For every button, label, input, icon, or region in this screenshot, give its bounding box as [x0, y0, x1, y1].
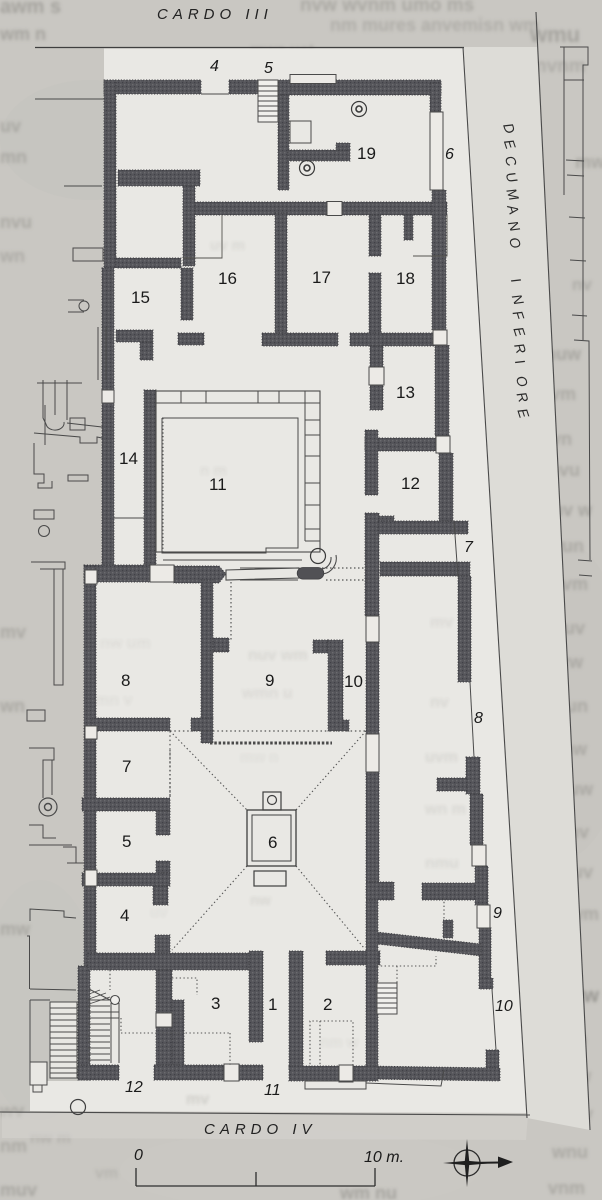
svg-text:nm: nm [0, 1136, 27, 1156]
svg-text:nm mures anvemisn wm: nm mures anvemisn wm [330, 15, 539, 35]
svg-text:7: 7 [122, 757, 131, 776]
svg-text:wn: wn [0, 696, 25, 716]
svg-text:wm n: wm n [0, 24, 46, 44]
svg-text:vnm: vnm [548, 1178, 585, 1198]
svg-text:4: 4 [210, 58, 219, 75]
svg-text:mv: mv [0, 622, 26, 642]
svg-text:nmu: nmu [425, 855, 459, 872]
svg-text:10 m.: 10 m. [364, 1149, 404, 1166]
svg-text:CARDO III: CARDO III [157, 6, 273, 23]
svg-text:mw: mw [0, 919, 31, 939]
svg-text:nw: nw [250, 892, 271, 909]
svg-text:m: m [180, 557, 192, 573]
svg-text:nw um: nw um [100, 635, 151, 652]
svg-text:mw: mw [575, 152, 602, 172]
svg-text:nv: nv [430, 694, 449, 711]
svg-text:1: 1 [268, 995, 277, 1014]
svg-text:muv: muv [0, 1180, 37, 1200]
svg-text:nuv wm: nuv wm [248, 647, 308, 664]
svg-text:wmn u: wmn u [241, 685, 293, 702]
svg-text:mw n: mw n [240, 749, 278, 766]
svg-text:0: 0 [134, 1147, 143, 1164]
svg-text:16: 16 [218, 269, 237, 288]
svg-text:6: 6 [445, 146, 454, 163]
svg-text:2: 2 [323, 995, 332, 1014]
svg-text:12: 12 [401, 474, 420, 493]
svg-text:nv: nv [572, 275, 592, 294]
svg-text:5: 5 [264, 60, 273, 77]
svg-text:nm w: nm w [320, 1034, 359, 1051]
svg-text:7: 7 [464, 539, 474, 556]
svg-text:awm s: awm s [0, 0, 61, 18]
svg-text:18: 18 [396, 269, 415, 288]
svg-text:10: 10 [344, 672, 363, 691]
svg-text:8: 8 [121, 671, 130, 690]
svg-text:nvnm: nvnm [535, 56, 586, 77]
svg-text:uv: uv [0, 116, 21, 136]
svg-text:8: 8 [474, 710, 483, 727]
svg-text:nvw wvnm umo ms: nvw wvnm umo ms [300, 0, 474, 16]
svg-text:uv: uv [150, 904, 168, 921]
svg-text:4: 4 [120, 906, 129, 925]
svg-text:wnu: wnu [551, 1142, 588, 1162]
svg-text:uvm: uvm [425, 749, 458, 766]
svg-text:mv: mv [430, 614, 453, 631]
svg-text:mv: mv [186, 1091, 209, 1108]
svg-text:14: 14 [119, 449, 138, 468]
svg-text:15: 15 [131, 288, 150, 307]
svg-text:nvu: nvu [0, 212, 32, 232]
svg-text:10: 10 [495, 998, 513, 1015]
svg-text:mn: mn [0, 147, 27, 167]
svg-text:CARDO IV: CARDO IV [204, 1121, 317, 1138]
svg-text:wn m: wn m [424, 801, 466, 818]
svg-text:17: 17 [312, 268, 331, 287]
svg-text:n m: n m [200, 462, 227, 479]
svg-text:13: 13 [396, 383, 415, 402]
svg-text:9: 9 [493, 905, 502, 922]
svg-text:19: 19 [357, 144, 376, 163]
svg-text:mn v: mn v [95, 692, 132, 709]
svg-text:uv m: uv m [210, 237, 245, 254]
svg-text:3: 3 [211, 994, 220, 1013]
svg-text:wn: wn [0, 246, 25, 266]
svg-text:12: 12 [125, 1079, 143, 1096]
svg-text:11: 11 [264, 1082, 281, 1099]
svg-text:5: 5 [122, 832, 131, 851]
svg-text:vm: vm [95, 1165, 118, 1182]
svg-text:6: 6 [268, 833, 277, 852]
